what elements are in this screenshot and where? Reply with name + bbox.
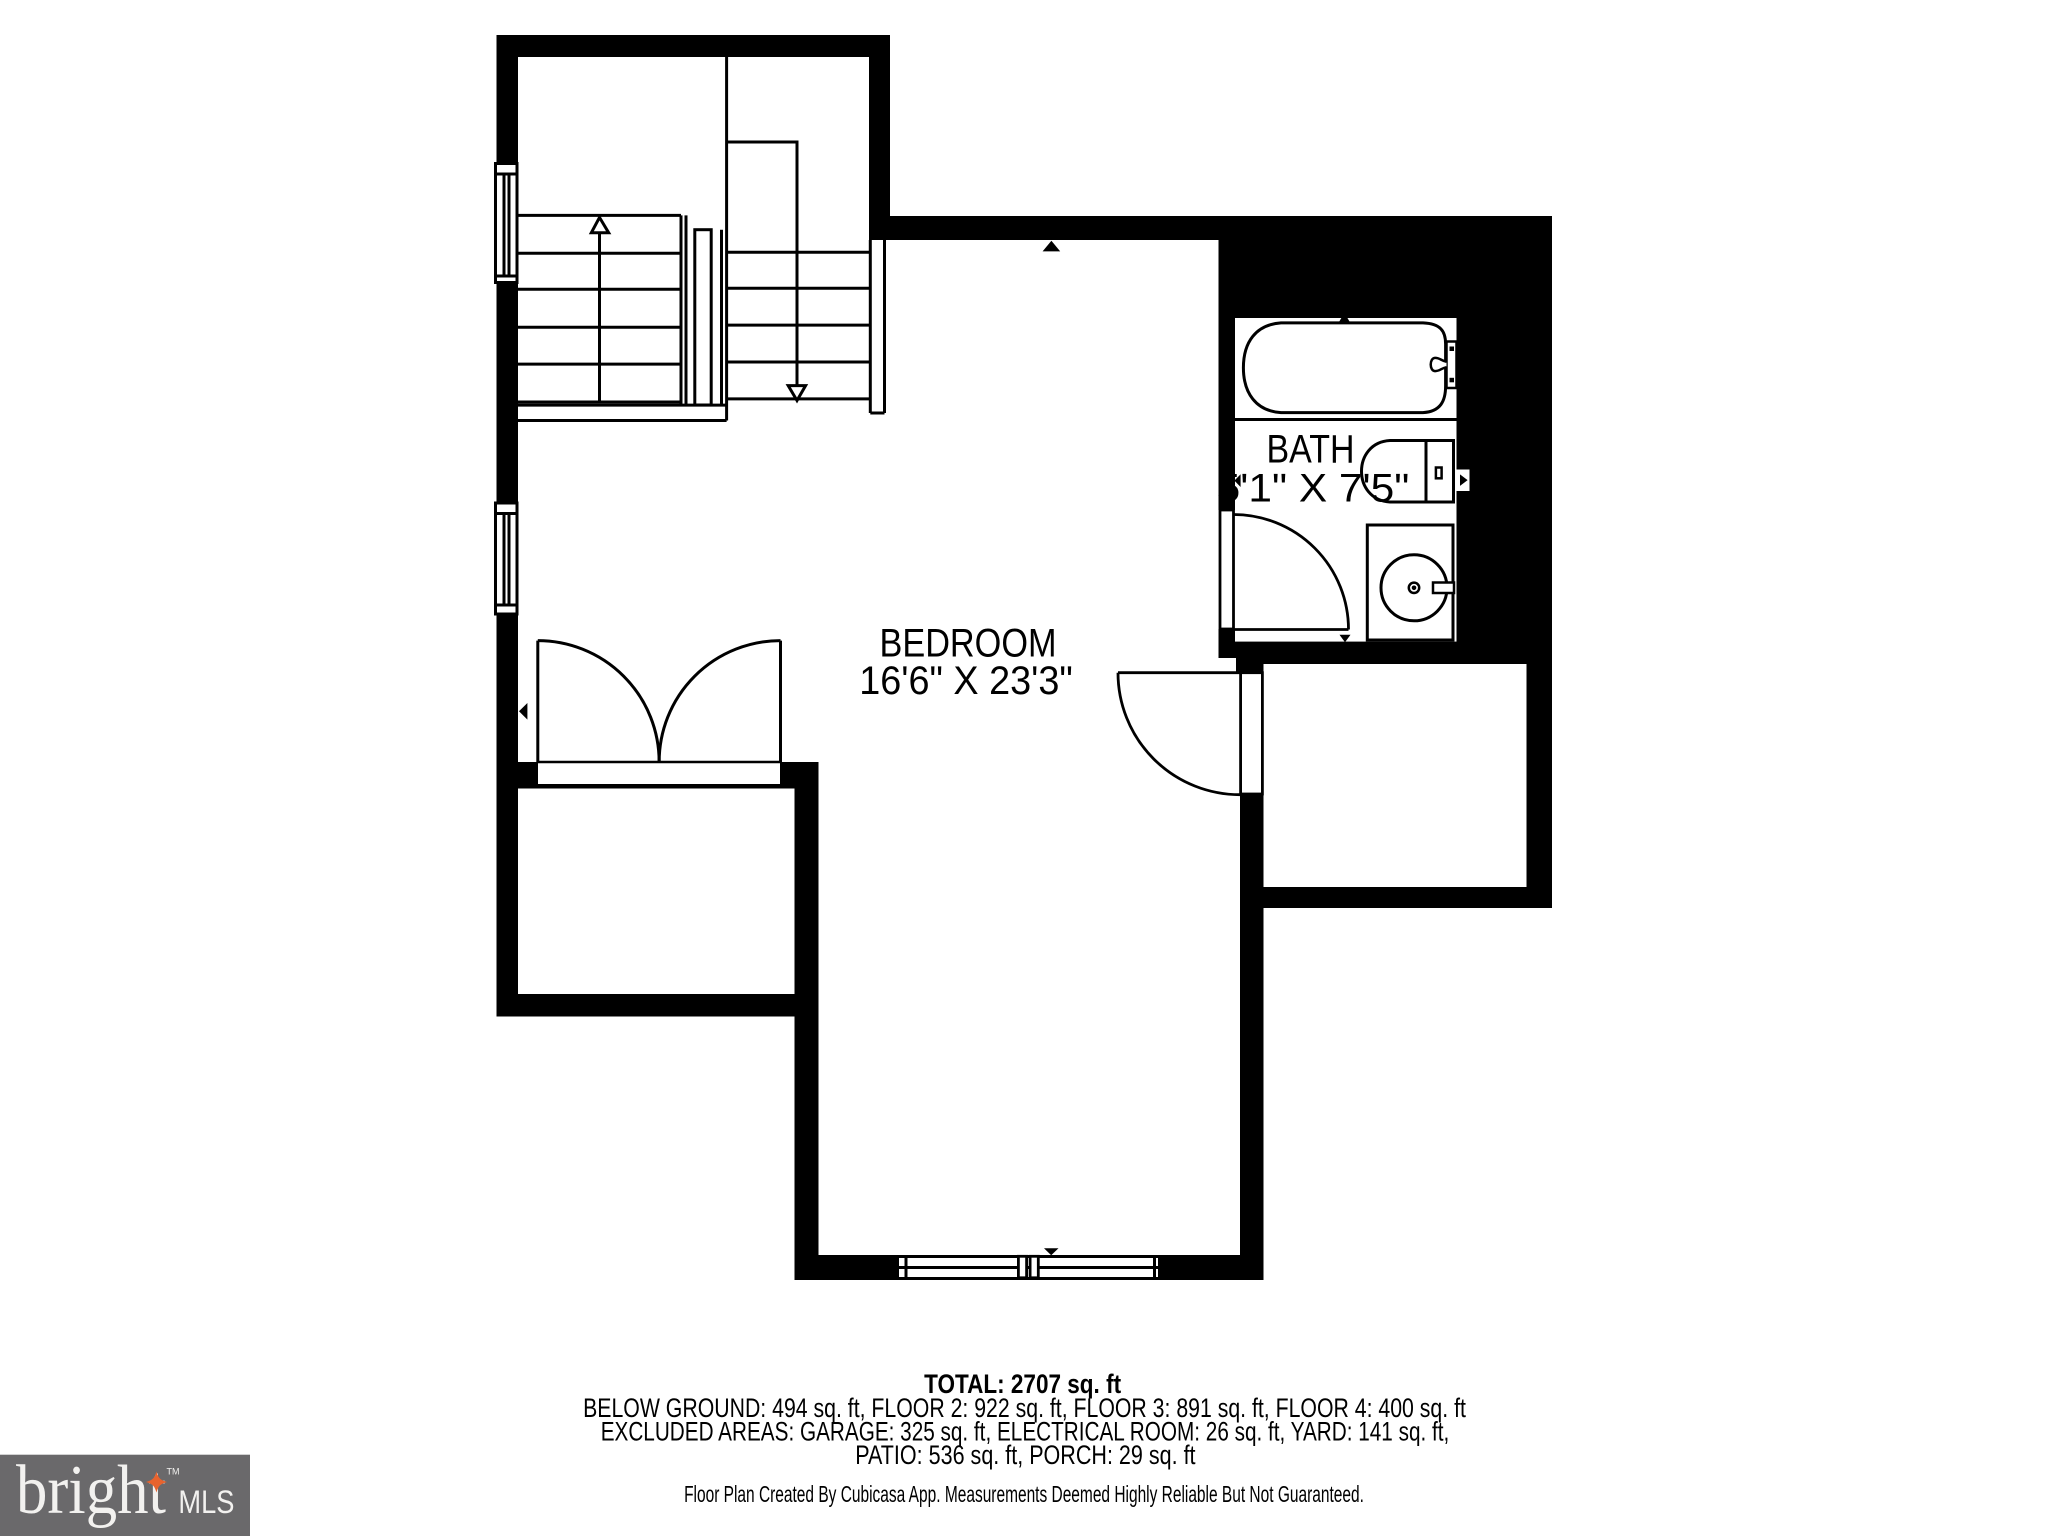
svg-text:PATIO: 536 sq. ft, PORCH: 29 s: PATIO: 536 sq. ft, PORCH: 29 sq. ft [855,1440,1196,1470]
svg-text:TM: TM [167,1467,180,1477]
svg-text:16'6" X 23'3": 16'6" X 23'3" [859,659,1073,703]
svg-text:Floor Plan Created By Cubicasa: Floor Plan Created By Cubicasa App. Meas… [684,1481,1364,1507]
svg-text:5'1" X 7'5": 5'1" X 7'5" [1217,466,1410,510]
svg-text:MLS: MLS [178,1484,234,1520]
svg-text:bright: bright [16,1452,166,1529]
svg-text:BATH: BATH [1267,428,1355,472]
